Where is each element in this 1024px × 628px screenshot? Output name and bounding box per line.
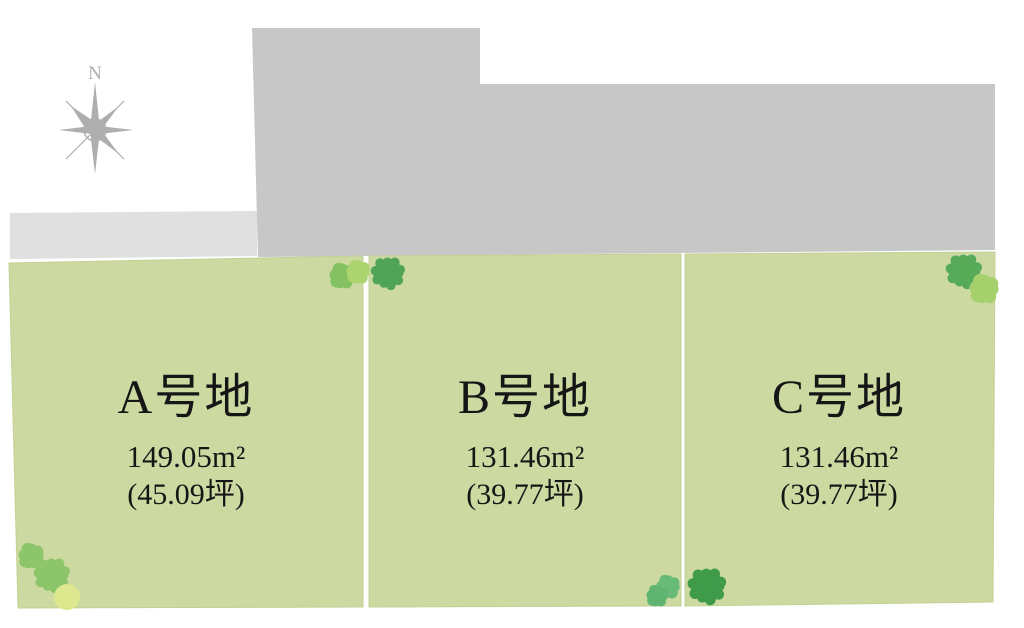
road-strip bbox=[10, 211, 257, 259]
plot-b-shape bbox=[369, 254, 681, 607]
site-plan: N A号地 149.05m² (45.09坪) B号地 131.46m² (39… bbox=[0, 0, 1024, 628]
plot-c-shape bbox=[685, 252, 995, 606]
tree-icon bbox=[346, 260, 369, 284]
compass-rose-icon: N bbox=[59, 63, 133, 174]
tree-icon bbox=[54, 584, 80, 610]
site-plan-drawing: N bbox=[0, 0, 1024, 628]
building-block bbox=[252, 28, 995, 257]
tree-icon bbox=[646, 585, 667, 607]
tree-icon bbox=[970, 274, 999, 303]
compass-north-label: N bbox=[88, 63, 102, 84]
plot-a-shape bbox=[9, 256, 363, 608]
